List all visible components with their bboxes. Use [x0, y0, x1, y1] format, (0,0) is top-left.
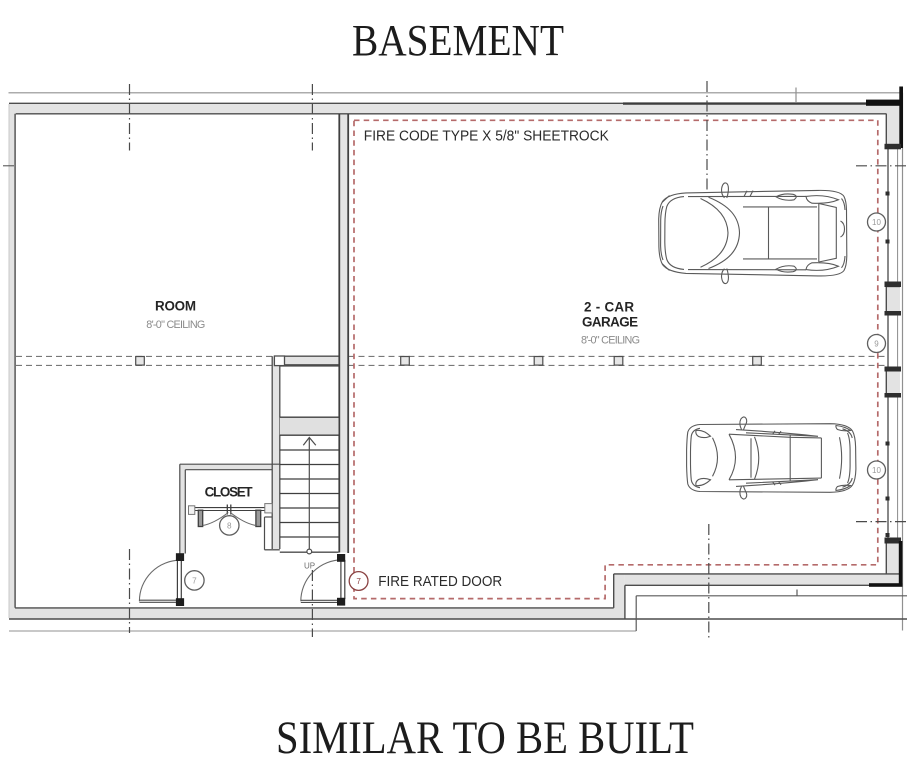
svg-text:UP: UP: [304, 561, 315, 570]
svg-text:8'-0" CEILING: 8'-0" CEILING: [581, 335, 640, 347]
svg-text:10: 10: [872, 218, 881, 227]
svg-text:FIRE CODE TYPE X 5/8" SHEETROC: FIRE CODE TYPE X 5/8" SHEETROCK: [364, 129, 609, 145]
svg-text:8: 8: [227, 521, 232, 530]
svg-text:ROOM: ROOM: [155, 299, 196, 314]
svg-text:SIMILAR TO BE BUILT: SIMILAR TO BE BUILT: [276, 712, 694, 764]
svg-text:CLOSET: CLOSET: [205, 484, 254, 499]
svg-text:10: 10: [872, 466, 881, 475]
svg-text:8'-0" CEILING: 8'-0" CEILING: [146, 319, 205, 331]
svg-text:7: 7: [192, 576, 197, 585]
svg-text:BASEMENT: BASEMENT: [352, 16, 564, 65]
svg-text:9: 9: [874, 340, 879, 349]
svg-text:2 - CAR: 2 - CAR: [584, 300, 634, 315]
svg-text:7: 7: [356, 577, 361, 586]
svg-text:FIRE RATED DOOR: FIRE RATED DOOR: [378, 574, 502, 590]
svg-text:GARAGE: GARAGE: [582, 315, 638, 330]
